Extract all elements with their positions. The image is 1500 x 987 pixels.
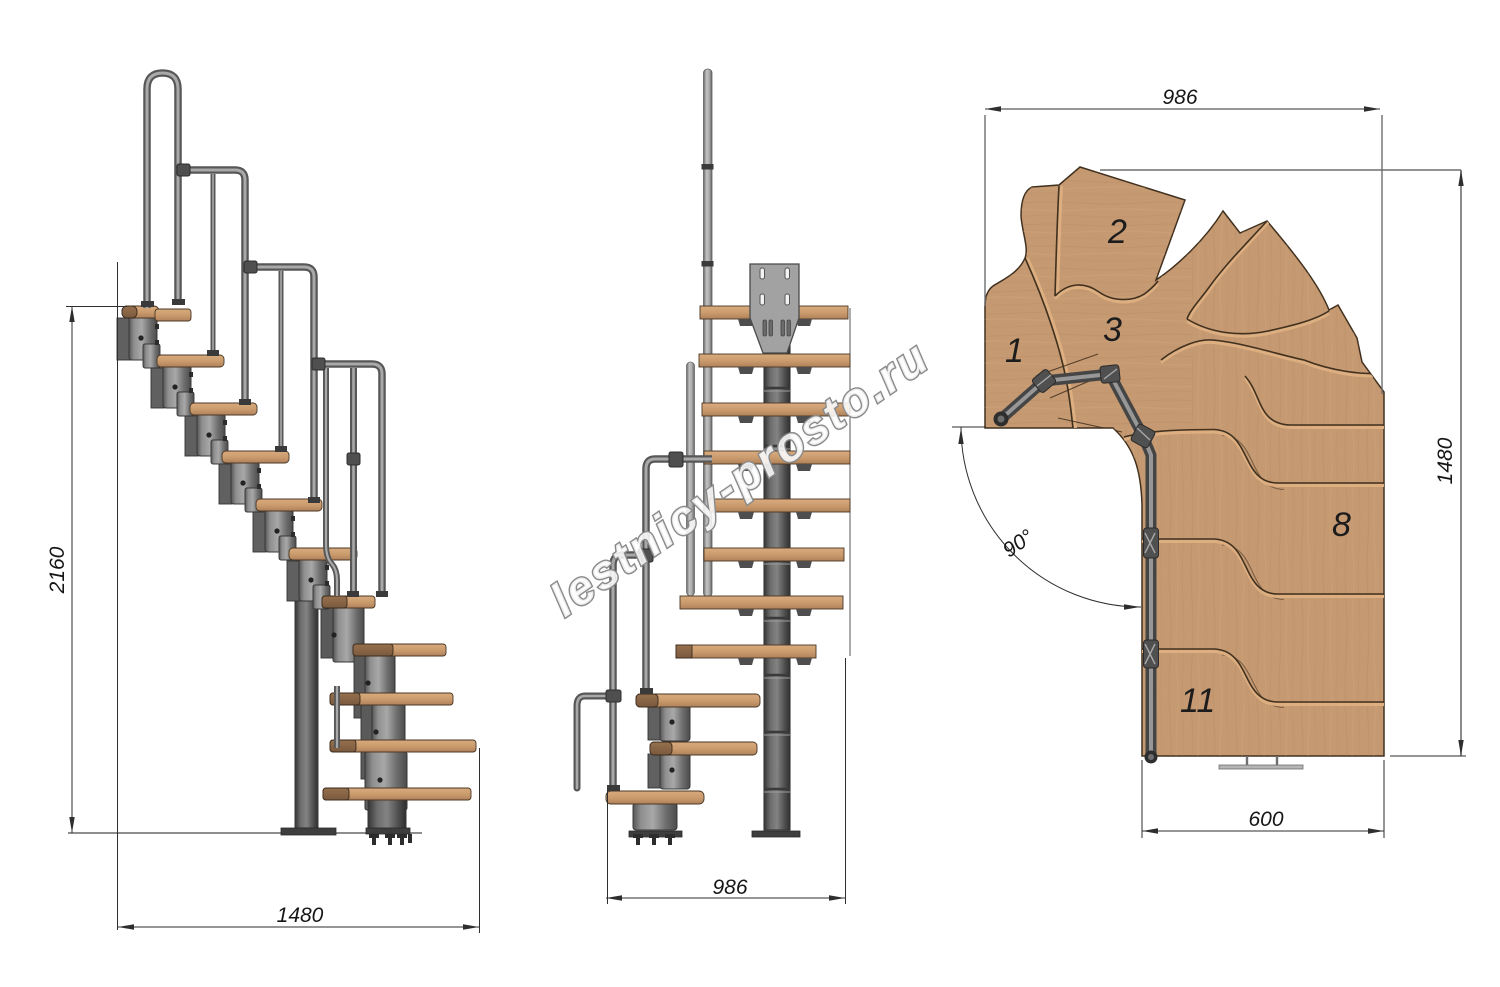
- svg-text:lestnicy-prosto.ru: lestnicy-prosto.ru: [540, 331, 937, 627]
- svg-text:8: 8: [1332, 506, 1351, 544]
- svg-text:90°: 90°: [999, 525, 1038, 562]
- svg-text:3: 3: [1103, 311, 1122, 349]
- svg-text:986: 986: [712, 876, 747, 899]
- svg-text:1: 1: [1005, 332, 1024, 370]
- svg-text:2160: 2160: [46, 546, 69, 594]
- svg-text:1480: 1480: [1434, 437, 1457, 484]
- svg-text:11: 11: [1180, 682, 1215, 720]
- svg-text:986: 986: [1162, 86, 1197, 109]
- svg-text:2: 2: [1107, 213, 1127, 251]
- svg-text:600: 600: [1248, 808, 1283, 831]
- svg-text:1480: 1480: [277, 904, 324, 927]
